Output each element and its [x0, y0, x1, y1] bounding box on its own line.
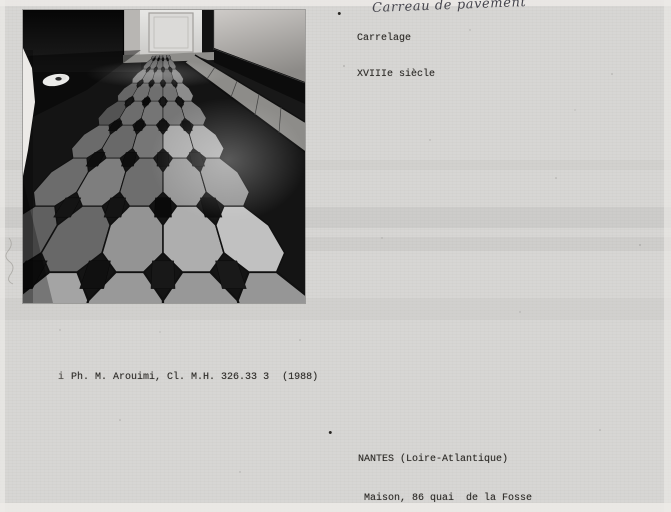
credit-text: Ph. M. Arouimi, Cl. M.H. 326.33 3	[71, 372, 269, 383]
bullet-dot: •	[336, 9, 343, 21]
pencil-scribble	[6, 238, 13, 284]
photo-tiled-floor	[23, 10, 305, 303]
card-edge	[0, 0, 5, 512]
location-address: Maison, 86 quai de la Fosse	[358, 492, 532, 505]
archive-photo-card: Carreau de pavement • Carrelage XVIIIe s…	[0, 0, 671, 512]
photo-image	[23, 10, 305, 303]
card-edge	[664, 0, 671, 512]
door-frame	[123, 10, 140, 57]
location-city: NANTES (Loire-Atlantique)	[358, 453, 532, 466]
card-edge	[0, 0, 671, 6]
subject-block: Carrelage XVIIIe siècle	[357, 9, 435, 105]
credit-mark: i	[58, 372, 64, 383]
period-line: XVIIIe siècle	[357, 69, 435, 81]
credit-year: (1988)	[282, 372, 318, 383]
door-edge-shadow	[202, 10, 214, 55]
location-block: NANTES (Loire-Atlantique) Maison, 86 qua…	[358, 427, 532, 512]
bullet-dot: •	[327, 428, 334, 440]
door-panel	[149, 13, 193, 52]
card-edge	[0, 503, 671, 512]
credit-line: iPh. M. Arouimi, Cl. M.H. 326.33 3(1988)	[34, 361, 318, 394]
subject-line: Carrelage	[357, 33, 435, 45]
